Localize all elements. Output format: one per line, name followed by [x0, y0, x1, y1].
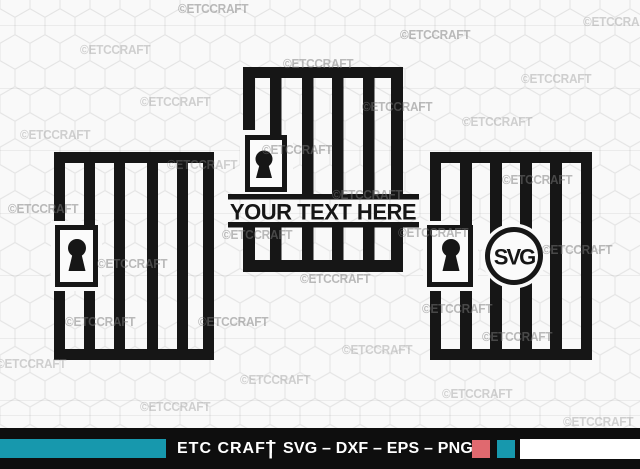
footer-teal-square	[497, 440, 515, 458]
jail-door-design-middle: YOUR TEXT HERE	[228, 67, 419, 272]
product-preview-image: YOUR TEXT HERE	[0, 0, 640, 469]
footer-red-square	[472, 440, 490, 458]
padlock-icon	[430, 228, 471, 285]
padlock-icon	[248, 138, 285, 190]
svg-monogram-label: SVG	[494, 245, 535, 270]
jail-door-design-right: SVG	[423, 158, 587, 355]
circle-monogram: SVG	[482, 224, 547, 289]
banner-bottom-rule	[228, 222, 419, 228]
footer-bar: ETC CRAFT | SVG – DXF – EPS – PNG	[0, 428, 640, 469]
keyhole-icon	[256, 151, 273, 179]
footer-formats-text: SVG – DXF – EPS – PNG	[283, 440, 473, 458]
footer-white-bar	[520, 439, 640, 459]
padlock-icon	[58, 228, 96, 285]
footer-divider: |	[268, 437, 273, 461]
footer-brand-text: ETC CRAFT	[177, 440, 277, 458]
svg-designs-canvas: YOUR TEXT HERE	[0, 0, 640, 469]
footer-accent-bar	[0, 439, 166, 458]
jail-door-design-left	[51, 158, 209, 355]
your-text-here-label: YOUR TEXT HERE	[230, 200, 416, 225]
